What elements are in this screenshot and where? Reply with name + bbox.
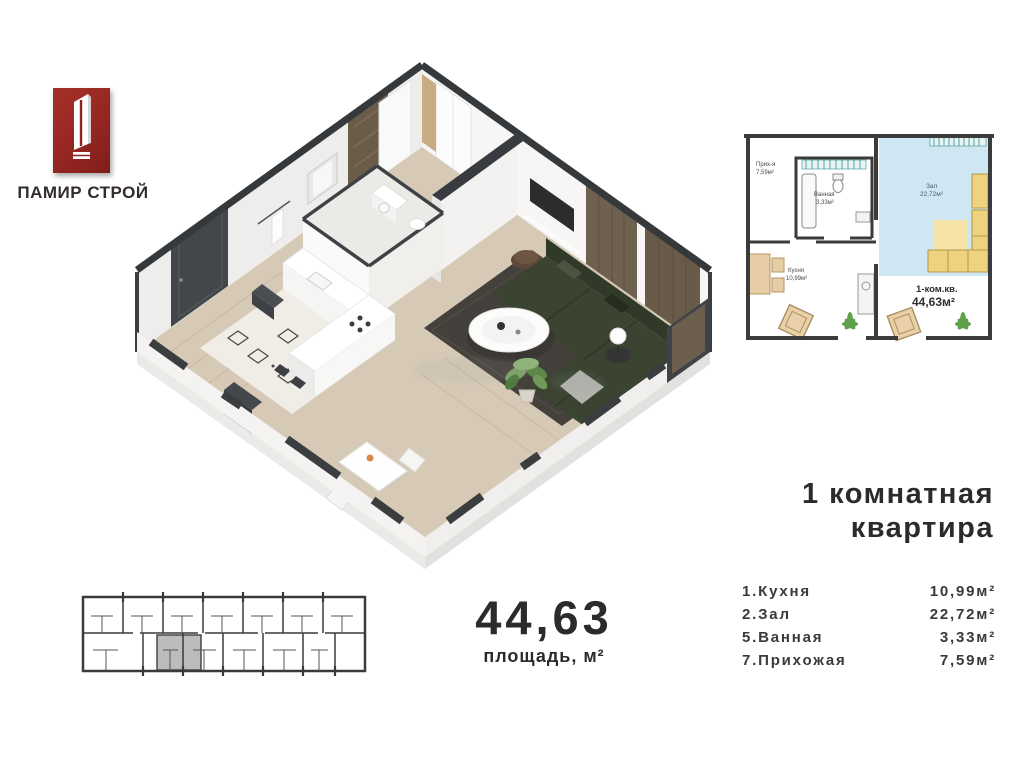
label-living: Зал [926, 183, 938, 190]
title-line-1: 1 комнатная [664, 477, 994, 511]
label-bathroom: Ванная [814, 192, 835, 198]
flyer-canvas: ПАМИР СТРОЙ [0, 0, 1024, 768]
tower-logo-icon [53, 88, 110, 173]
highlighted-unit [157, 635, 201, 670]
room-label: 5.Ванная [742, 629, 823, 646]
toilet [409, 219, 425, 230]
kitchen-table [748, 254, 770, 294]
table-flowers [367, 455, 374, 462]
building-floor-schematic [78, 588, 370, 680]
label-hallway-area: 7,59м² [756, 170, 774, 176]
living-rug [934, 220, 968, 254]
room-area: 3,33м² [940, 629, 996, 646]
plan2d-summary-area: 44,63м² [912, 295, 955, 309]
label-kitchen: Кухня [788, 268, 804, 274]
room-list: 1.Кухня 10,99м² 2.Зал 22,72м² 5.Ванная 3… [742, 583, 996, 675]
chair [772, 278, 784, 292]
room-list-row: 5.Ванная 3,33м² [742, 629, 996, 646]
room-area: 7,59м² [940, 652, 996, 669]
room-list-row: 7.Прихожая 7,59м² [742, 652, 996, 669]
bathtub [802, 174, 816, 228]
sofa [928, 250, 988, 272]
room-label: 7.Прихожая [742, 652, 847, 669]
tower-logo-glyph [53, 88, 110, 173]
area-label: площадь, м² [437, 646, 651, 667]
floorplan-3d-render [112, 52, 737, 592]
entry-mirror [422, 74, 436, 152]
room-label: 2.Зал [742, 606, 791, 623]
floorplan-2d: Прих-я 7,59м² Ванная 3,33м² Зал 22,72м² … [738, 124, 1000, 354]
room-area: 22,72м² [930, 606, 996, 623]
chair [772, 258, 784, 272]
kitchen-counter [858, 274, 874, 314]
room-area: 10,99м² [930, 583, 996, 600]
label-bathroom-area: 3,33м² [816, 200, 834, 206]
page-title: 1 комнатная квартира [664, 477, 994, 545]
title-line-2: квартира [664, 511, 994, 545]
room-list-row: 2.Зал 22,72м² [742, 606, 996, 623]
plan2d-summary-type: 1-ком.кв. [916, 284, 958, 295]
label-kitchen-area: 10,99м² [786, 276, 807, 282]
room-label: 1.Кухня [742, 583, 811, 600]
room-list-row: 1.Кухня 10,99м² [742, 583, 996, 600]
toilet [833, 180, 843, 193]
label-living-area: 22,72м² [920, 191, 944, 198]
wardrobe [972, 174, 988, 208]
area-summary: 44,63 площадь, м² [437, 590, 651, 667]
sink [856, 212, 870, 222]
label-hallway: Прих-я [756, 162, 775, 168]
area-value: 44,63 [437, 590, 651, 645]
